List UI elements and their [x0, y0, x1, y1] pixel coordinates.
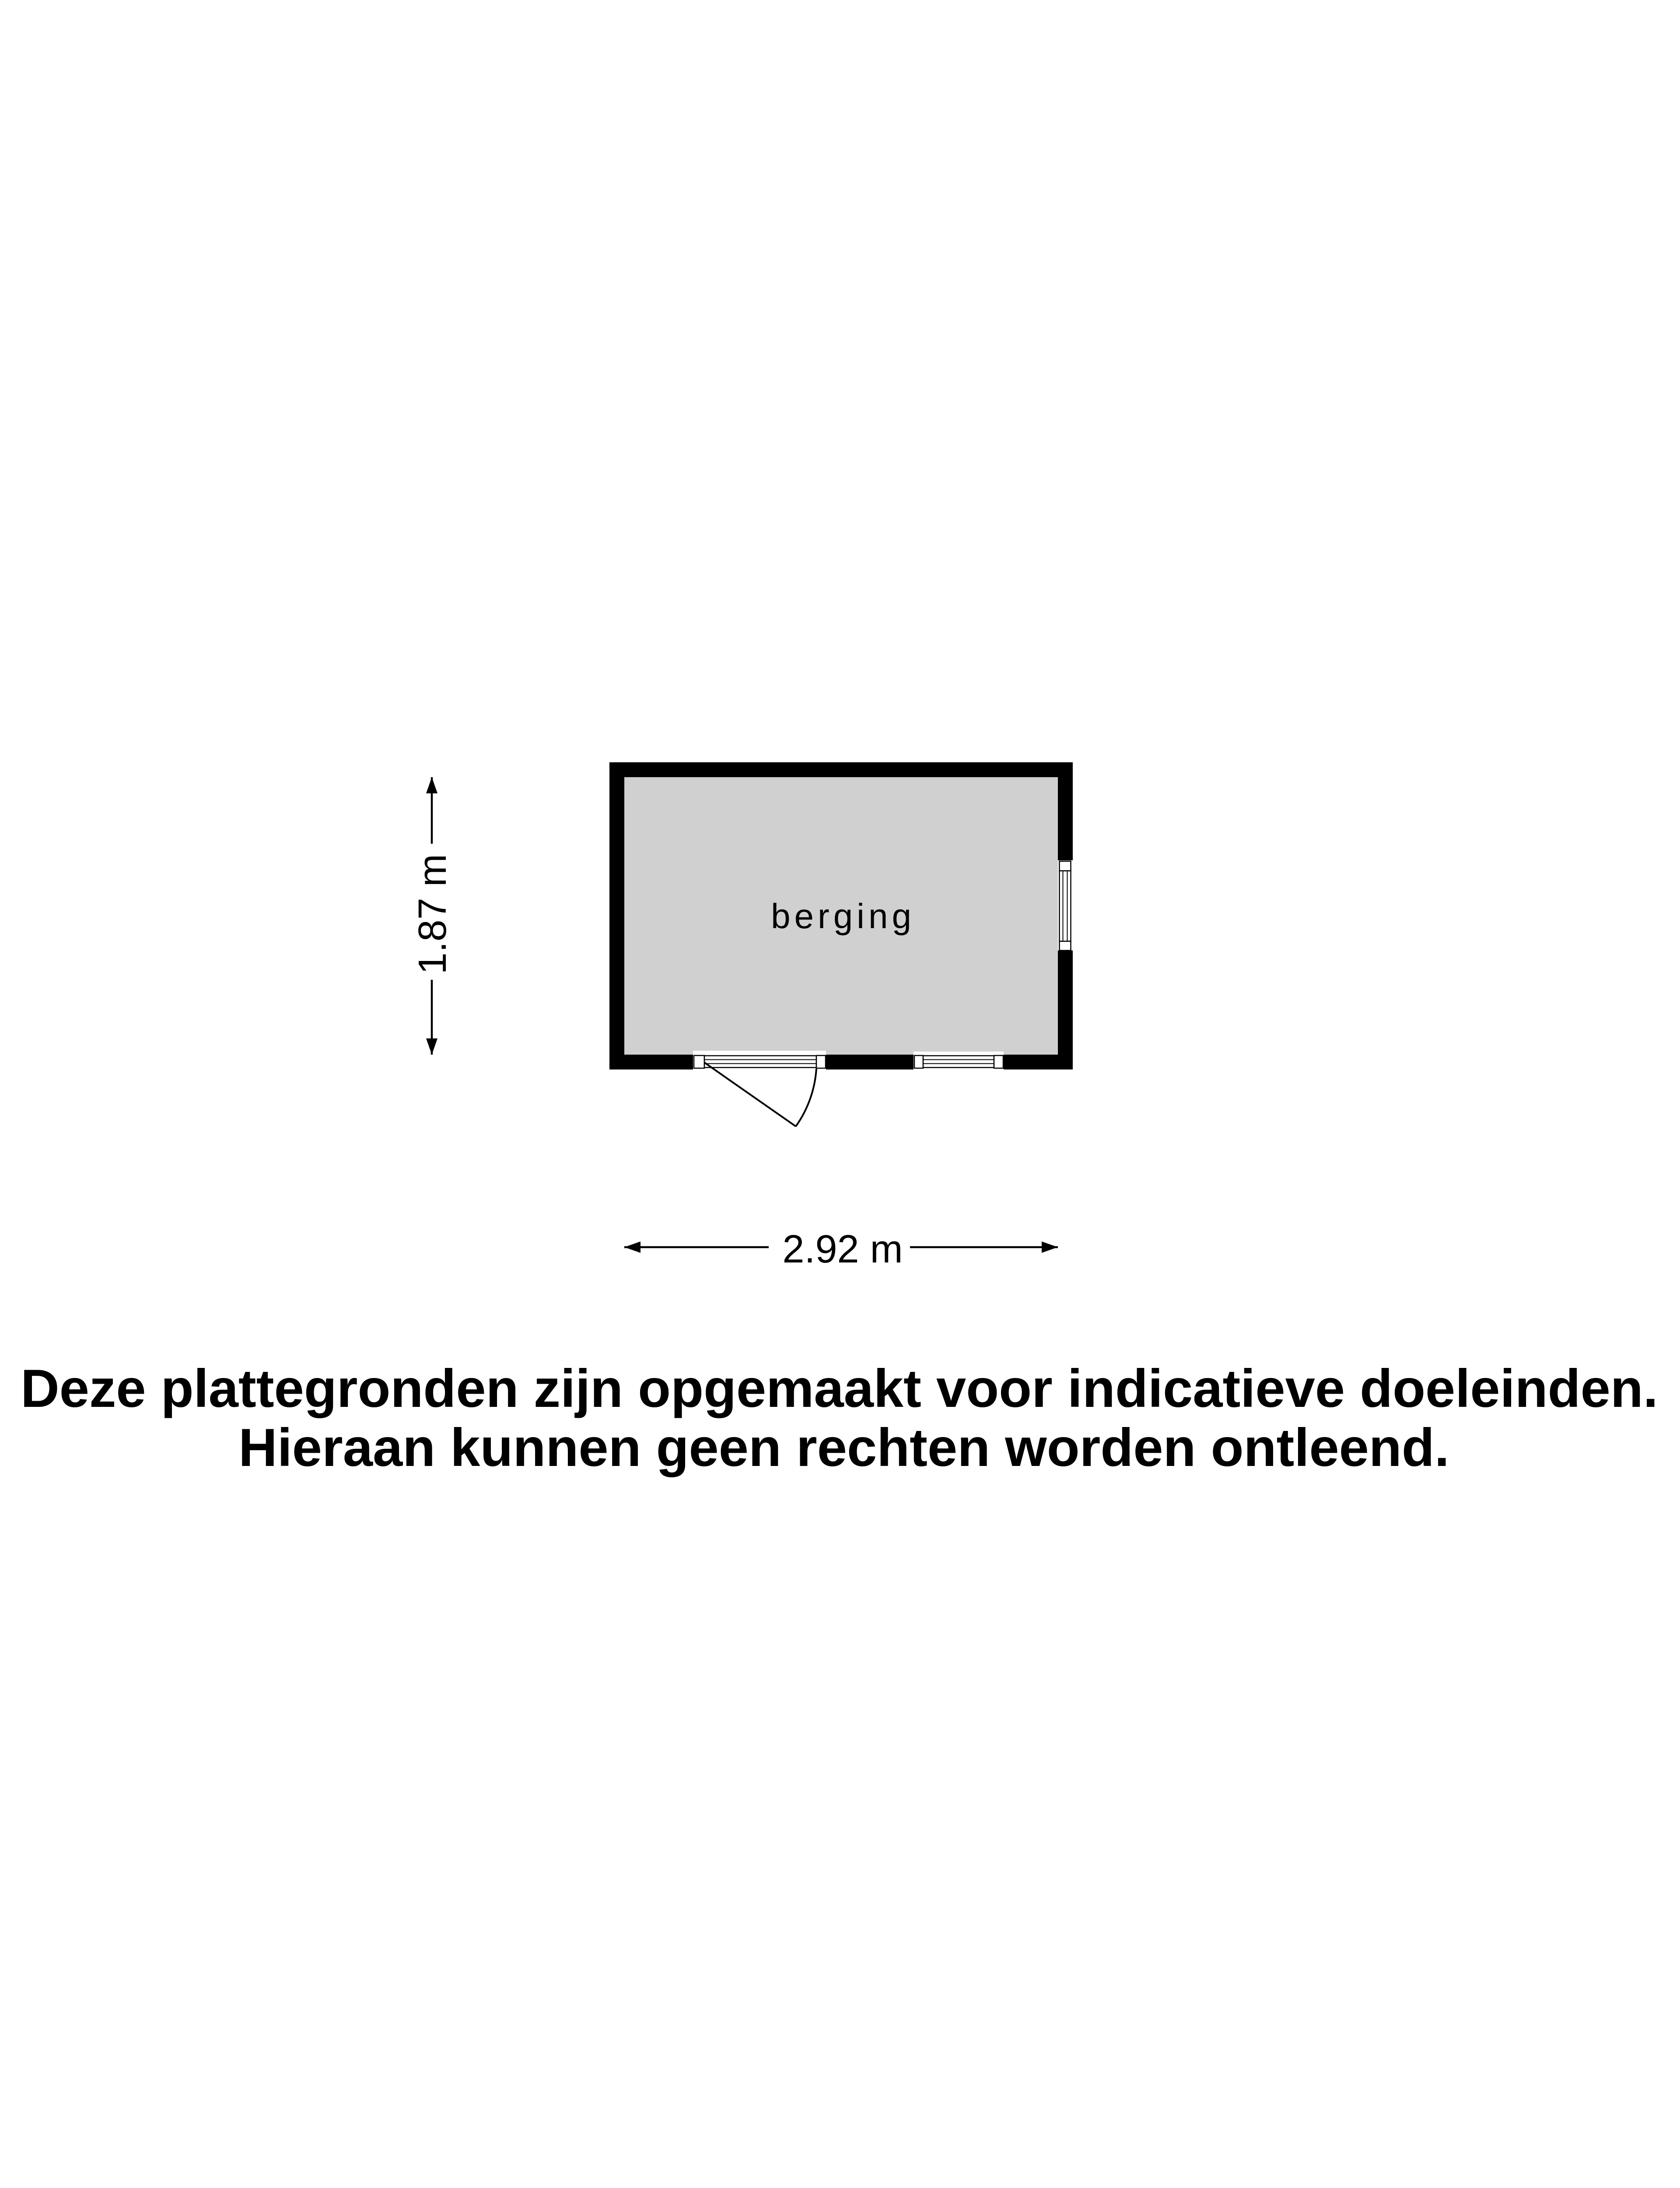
svg-text:berging: berging [771, 897, 915, 936]
svg-text:Hieraan kunnen geen rechten wo: Hieraan kunnen geen rechten worden ontle… [238, 1418, 1449, 1478]
svg-text:2.92 m: 2.92 m [782, 1227, 903, 1271]
svg-text:Deze plattegronden zijn opgema: Deze plattegronden zijn opgemaakt voor i… [21, 1359, 1658, 1419]
svg-text:1.87 m: 1.87 m [411, 854, 455, 974]
